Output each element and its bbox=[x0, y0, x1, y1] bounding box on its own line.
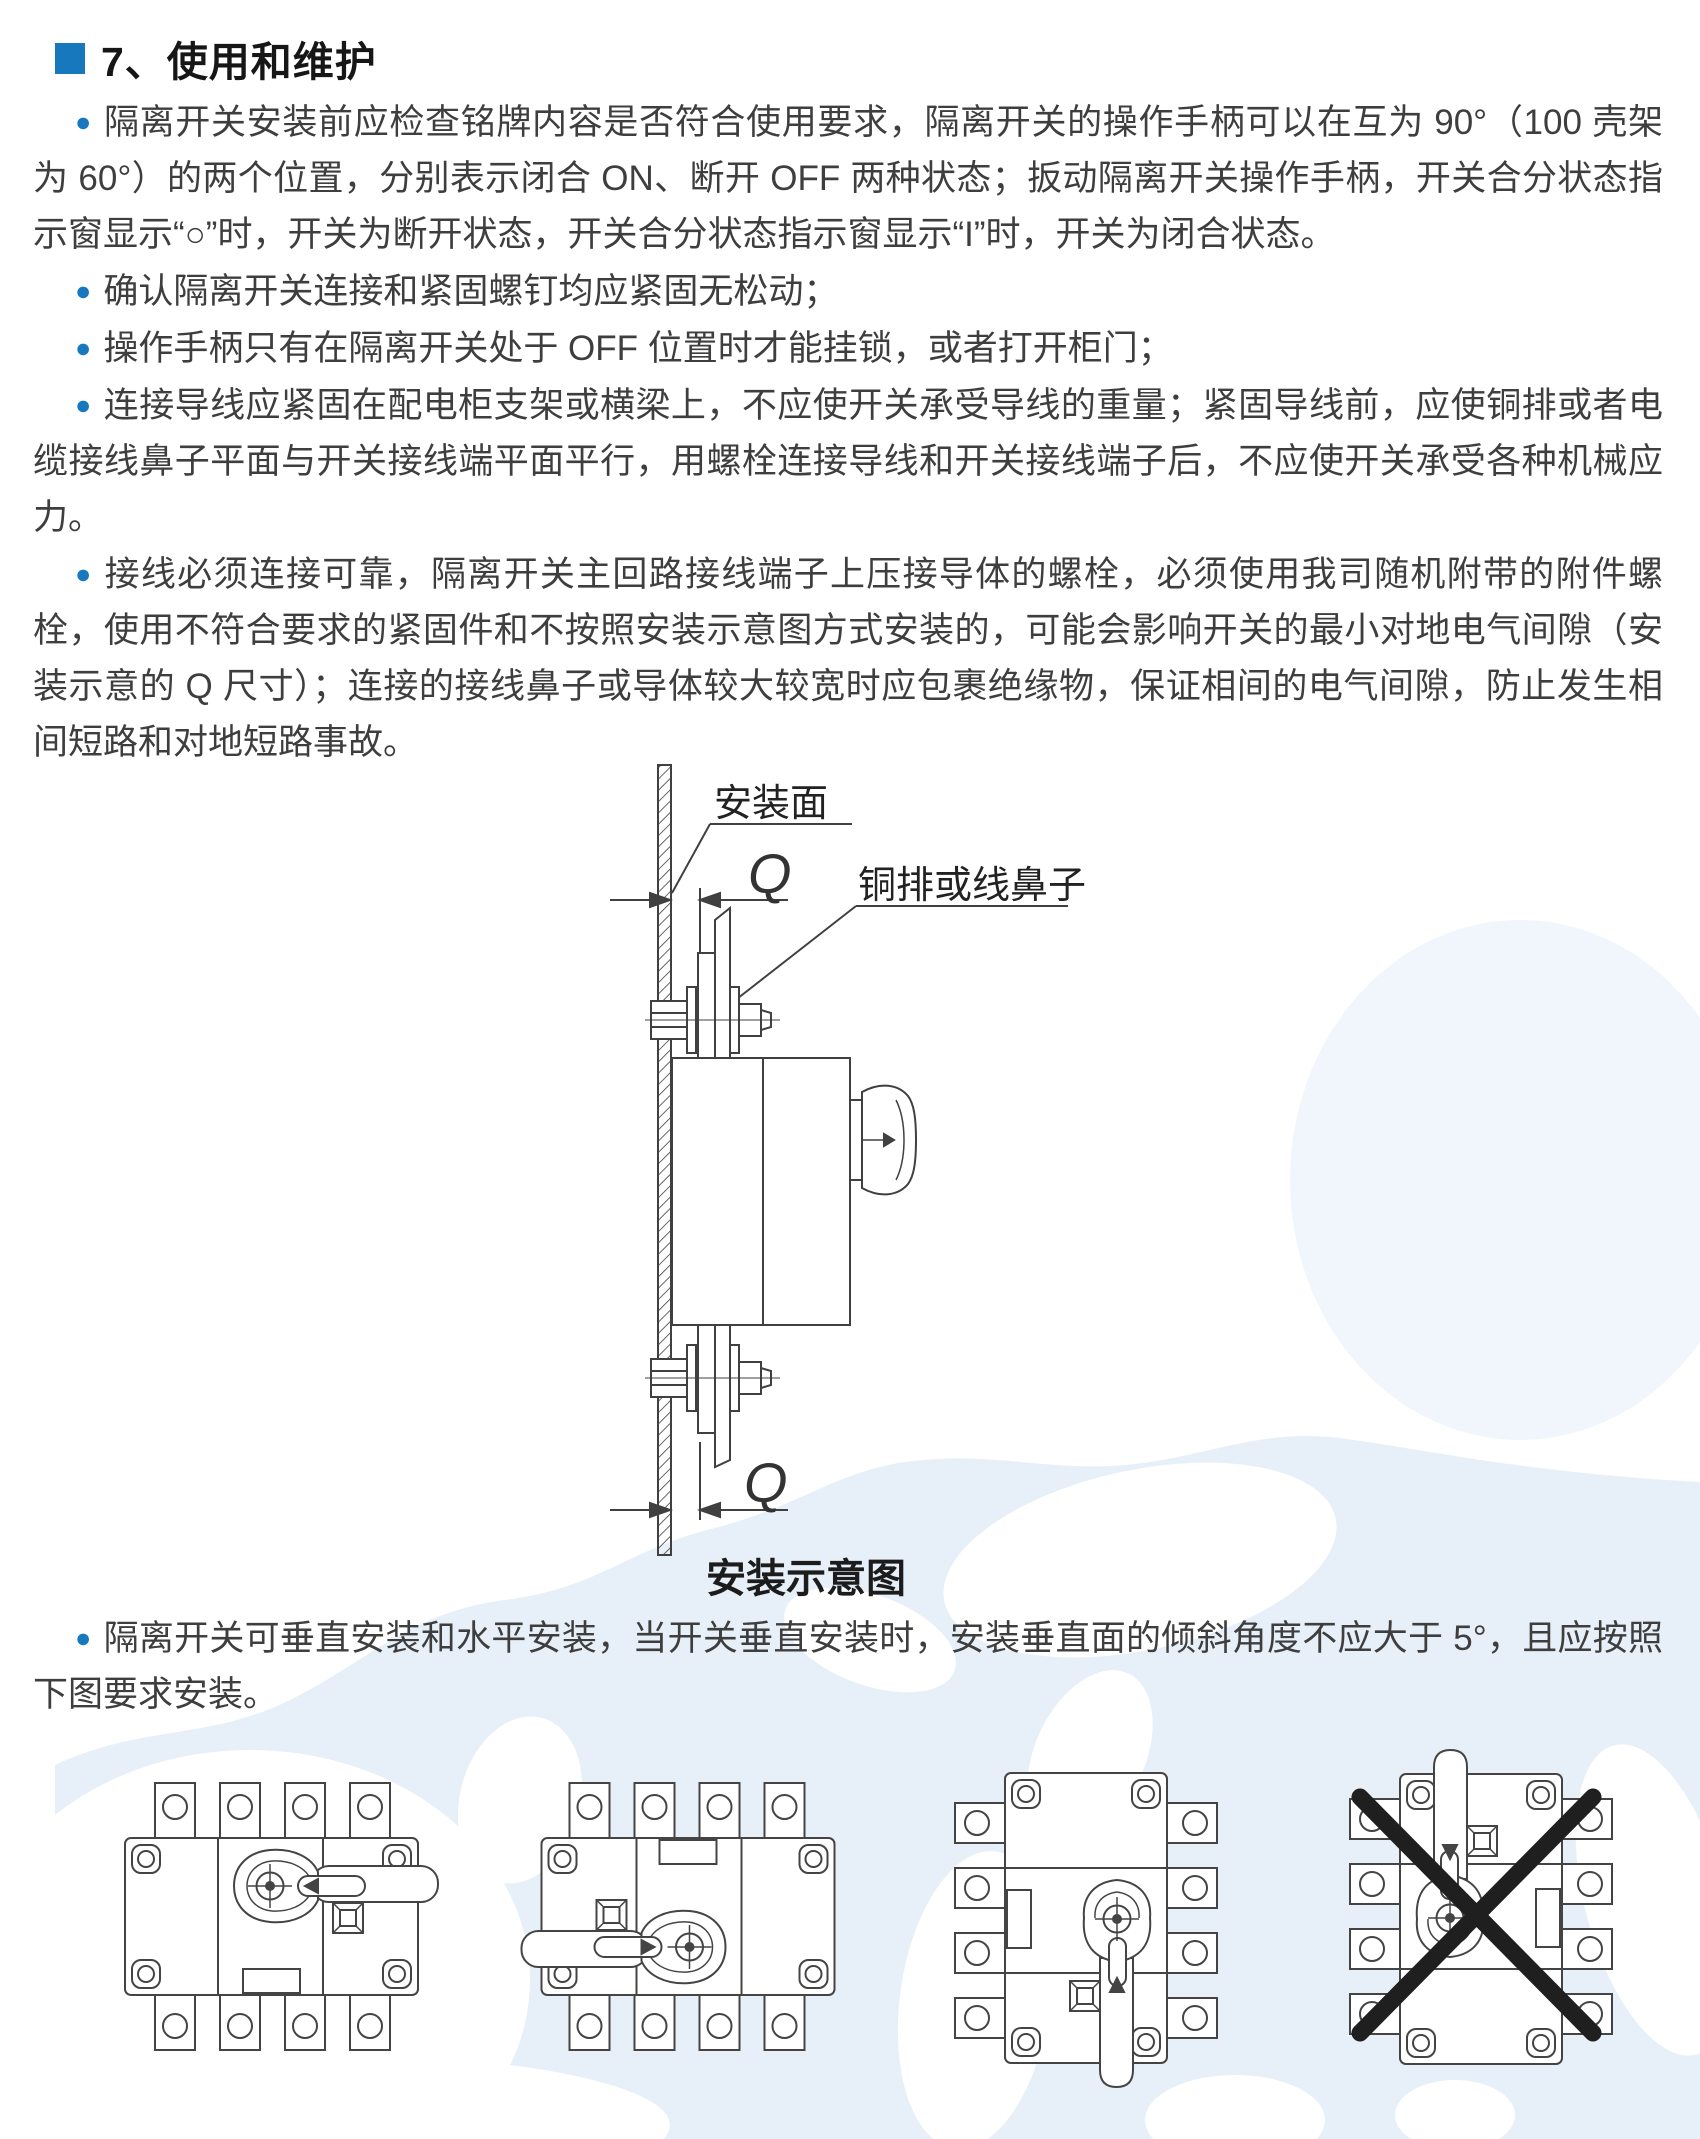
switch-terminal-bottom bbox=[698, 1325, 715, 1433]
body-text: ●隔离开关安装前应检查铭牌内容是否符合使用要求，隔离开关的操作手柄可以在互为 9… bbox=[33, 94, 1663, 771]
diagram-caption: 安装示意图 bbox=[706, 1557, 906, 1601]
paragraph-text: 接线必须连接可靠，隔离开关主回路接线端子上压接导体的螺栓，必须使用我司随机附带的… bbox=[33, 555, 1663, 762]
paragraph: ●隔离开关安装前应检查铭牌内容是否符合使用要求，隔离开关的操作手柄可以在互为 9… bbox=[33, 94, 1663, 263]
busbar-label: 铜排或线鼻子 bbox=[858, 865, 1086, 907]
paragraph: ●接线必须连接可靠，隔离开关主回路接线端子上压接导体的螺栓，必须使用我司随机附带… bbox=[33, 546, 1663, 771]
paragraph: ●操作手柄只有在隔离开关处于 OFF 位置时才能挂锁，或者打开柜门； bbox=[33, 320, 1663, 377]
switch-horizontal-handle-left bbox=[522, 1783, 835, 2050]
paragraph-text: 操作手柄只有在隔离开关处于 OFF 位置时才能挂锁，或者打开柜门； bbox=[103, 329, 1172, 368]
bullet-icon: ● bbox=[75, 276, 91, 306]
switch-body-side bbox=[672, 1058, 850, 1325]
bullet-icon: ● bbox=[75, 333, 91, 363]
bullet-icon: ● bbox=[75, 390, 92, 420]
switch-handle-side bbox=[850, 1086, 916, 1195]
dimension-q-bottom: Q bbox=[744, 1451, 788, 1514]
bullet-icon: ● bbox=[75, 1623, 92, 1653]
paragraph-text: 连接导线应紧固在配电柜支架或横梁上，不应使开关承受导线的重量；紧固导线前，应使铜… bbox=[33, 386, 1663, 537]
switch-terminal-top bbox=[698, 953, 715, 1058]
paragraph-text: 隔离开关安装前应检查铭牌内容是否符合使用要求，隔离开关的操作手柄可以在互为 90… bbox=[33, 103, 1663, 254]
paragraph: ●确认隔离开关连接和紧固螺钉均应紧固无松动； bbox=[33, 263, 1663, 320]
bullet-icon: ● bbox=[75, 107, 92, 137]
section-title: 7、使用和维护 bbox=[101, 28, 377, 88]
mounting-orientations-figure bbox=[0, 1700, 1700, 2139]
busbar-plate-bottom bbox=[715, 1325, 730, 1467]
paragraph: ●隔离开关可垂直安装和水平安装，当开关垂直安装时，安装垂直面的倾斜角度不应大于 … bbox=[33, 1610, 1663, 1723]
note-text: ●隔离开关可垂直安装和水平安装，当开关垂直安装时，安装垂直面的倾斜角度不应大于 … bbox=[33, 1610, 1663, 1723]
paragraph-text: 确认隔离开关连接和紧固螺钉均应紧固无松动； bbox=[103, 272, 838, 311]
mounting-surface-label: 安装面 bbox=[714, 783, 828, 825]
section-header: 7、使用和维护 bbox=[55, 28, 377, 88]
switch-vertical-handle-down bbox=[955, 1773, 1217, 2087]
dimension-q-top: Q bbox=[748, 842, 792, 905]
switch-horizontal-handle-right bbox=[125, 1783, 438, 2050]
bullet-icon: ● bbox=[75, 559, 93, 589]
mounting-surface-hatch bbox=[658, 765, 671, 1555]
document-page: 7、使用和维护 ●隔离开关安装前应检查铭牌内容是否符合使用要求，隔离开关的操作手… bbox=[0, 0, 1700, 2139]
paragraph-text: 隔离开关可垂直安装和水平安装，当开关垂直安装时，安装垂直面的倾斜角度不应大于 5… bbox=[33, 1619, 1663, 1714]
busbar-plate-top bbox=[715, 908, 730, 1058]
section-marker-square bbox=[55, 43, 85, 74]
paragraph: ●连接导线应紧固在配电柜支架或横梁上，不应使开关承受导线的重量；紧固导线前，应使… bbox=[33, 377, 1663, 546]
installation-diagram: 安装面 Q 铜排或线鼻子 Q 安装示意图 bbox=[400, 735, 1120, 1605]
